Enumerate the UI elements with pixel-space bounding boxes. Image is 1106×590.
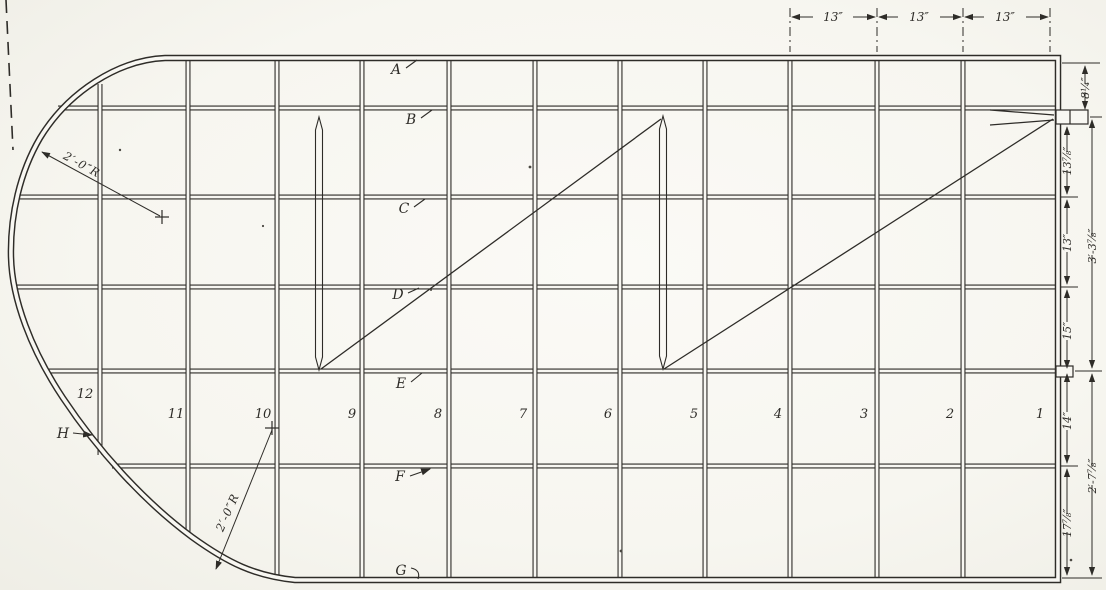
rib-number-10: 10 [255,407,272,422]
dim-right-14: 14″ [1061,411,1074,430]
wing-plan-drawing: 13″ 13″ 13″ 8¼″ 13⅞″ 13″ 15″ 14″ 17⅞″ 3′… [0,0,1106,590]
rib-number-3: 3 [860,407,868,422]
member-label-H: H [56,426,70,442]
radius-upper-label: 2′-0″R [60,148,103,180]
rib-number-7: 7 [519,407,528,422]
rib-number-2: 2 [945,407,954,422]
dim-top-3: 13″ [995,10,1015,24]
radius-callout-upper: 2′-0″R [42,148,169,224]
radius-lower-label: 2′-0″R [212,491,242,534]
dim-right-15: 15″ [1061,321,1074,340]
rib-number-6: 6 [604,407,612,422]
member-label-D: D [391,287,403,303]
rib-number-11: 11 [168,407,185,422]
member-label-E: E [395,376,406,392]
dim-right-total-upper: 3′-3⅞″ [1086,228,1099,264]
rib-number-4: 4 [773,407,782,422]
scan-speckles [119,149,1072,562]
member-label-C: C [399,201,410,217]
member-label-F: F [394,469,406,485]
dim-top-1: 13″ [823,10,843,24]
radius-callout-lower: 2′-0″R [212,421,279,569]
dim-right-8q: 8¼″ [1079,76,1092,99]
member-label-G: G [395,563,406,579]
rib-number-5: 5 [690,407,698,422]
dim-right-total-lower: 2′-7⅞″ [1086,458,1099,495]
centerline-dashed [6,0,13,150]
drag-wires [321,119,1053,369]
dim-right-13e: 13⅞″ [1061,146,1074,176]
dim-top-2: 13″ [909,10,929,24]
dim-right-13: 13″ [1061,233,1074,252]
rib-number-9: 9 [348,407,356,422]
blueprint-sheet: 13″ 13″ 13″ 8¼″ 13⅞″ 13″ 15″ 14″ 17⅞″ 3′… [0,0,1106,590]
rib-number-1: 1 [1036,407,1044,422]
dim-right-17e: 17⅞″ [1061,508,1074,538]
member-label-B: B [405,112,416,128]
member-leader-ticks [406,60,432,579]
member-label-A: A [389,62,401,78]
right-dimension-chain [1060,63,1102,578]
rib-number-8: 8 [434,407,442,422]
rib-number-12: 12 [77,387,94,402]
